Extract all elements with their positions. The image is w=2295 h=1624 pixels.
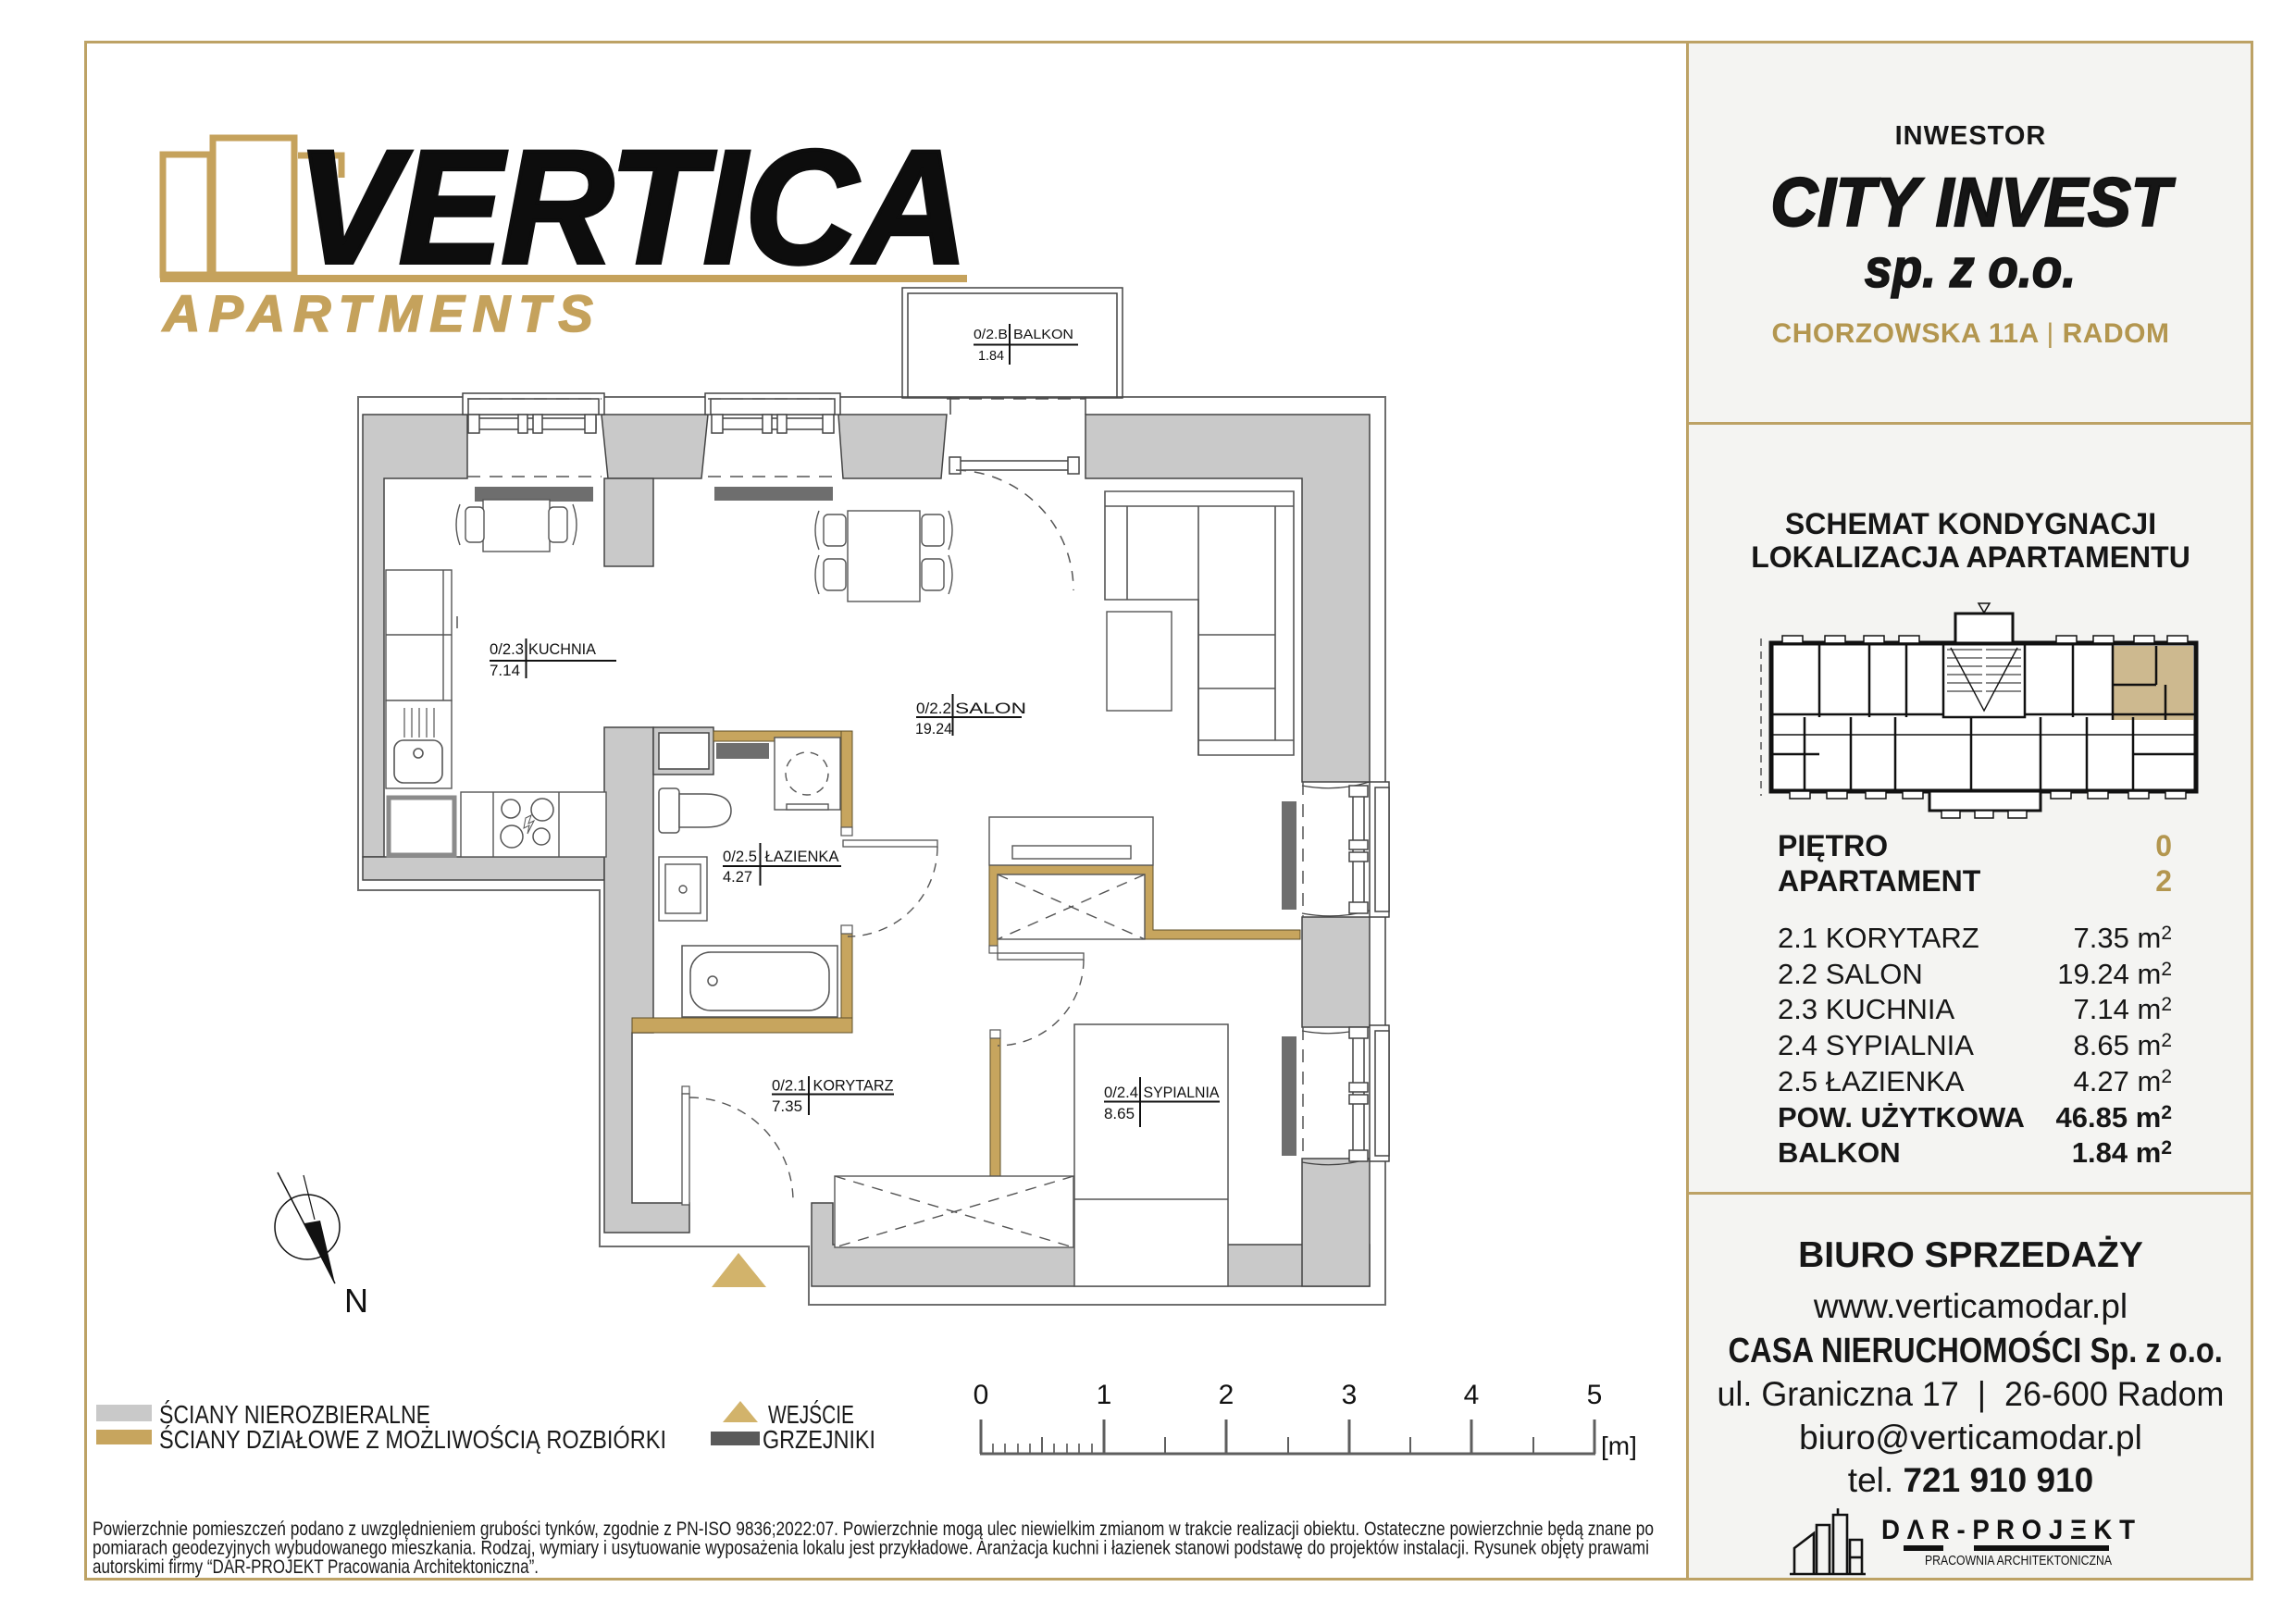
svg-text:1: 1: [1097, 1380, 1112, 1410]
svg-text:0: 0: [974, 1380, 989, 1410]
svg-text:KORYTARZ: KORYTARZ: [813, 1077, 894, 1095]
svg-text:0/2.4: 0/2.4: [1104, 1084, 1138, 1101]
svg-text:2: 2: [1219, 1380, 1234, 1410]
svg-text:5: 5: [1587, 1380, 1603, 1410]
svg-text:[m]: [m]: [1601, 1432, 1637, 1460]
svg-text:SYPIALNIA: SYPIALNIA: [1144, 1084, 1221, 1101]
svg-text:3: 3: [1342, 1380, 1358, 1410]
svg-text:ŁAZIENKA: ŁAZIENKA: [765, 848, 840, 865]
svg-text:0/2.3: 0/2.3: [490, 640, 524, 658]
svg-text:VERTICA: VERTICA: [296, 117, 967, 297]
svg-text:D Λ R - P R O J Ξ K T: D Λ R - P R O J Ξ K T: [1881, 1515, 2135, 1545]
svg-text:0/2.2: 0/2.2: [916, 700, 951, 717]
svg-text:19.24: 19.24: [915, 720, 952, 738]
svg-text:0/2.B: 0/2.B: [974, 327, 1008, 342]
svg-text:SALON: SALON: [955, 700, 1026, 717]
svg-text:GRZEJNIKI: GRZEJNIKI: [763, 1425, 875, 1454]
svg-text:ŚCIANY DZIAŁOWE Z MOŻLIWOŚCIĄ: ŚCIANY DZIAŁOWE Z MOŻLIWOŚCIĄ ROZBIÓRKI: [159, 1424, 666, 1454]
svg-text:4.27: 4.27: [723, 868, 752, 886]
svg-text:KUCHNIA: KUCHNIA: [528, 640, 597, 658]
svg-text:7.35: 7.35: [772, 1097, 802, 1115]
svg-text:N: N: [344, 1282, 368, 1320]
svg-text:PRACOWNIA ARCHITEKTONICZNA: PRACOWNIA ARCHITEKTONICZNA: [1925, 1553, 2112, 1568]
svg-text:0/2.1: 0/2.1: [772, 1077, 806, 1095]
svg-text:APARTMENTS: APARTMENTS: [161, 284, 602, 342]
svg-text:autorskimi firmy “DAR-PROJEKT: autorskimi firmy “DAR-PROJEKT Pracowania…: [93, 1556, 539, 1578]
svg-text:4: 4: [1464, 1380, 1480, 1410]
svg-text:BALKON: BALKON: [1013, 327, 1073, 342]
svg-text:0/2.5: 0/2.5: [723, 848, 757, 865]
svg-text:1.84: 1.84: [978, 348, 1004, 364]
svg-text:7.14: 7.14: [490, 662, 520, 679]
svg-text:8.65: 8.65: [1104, 1105, 1135, 1122]
